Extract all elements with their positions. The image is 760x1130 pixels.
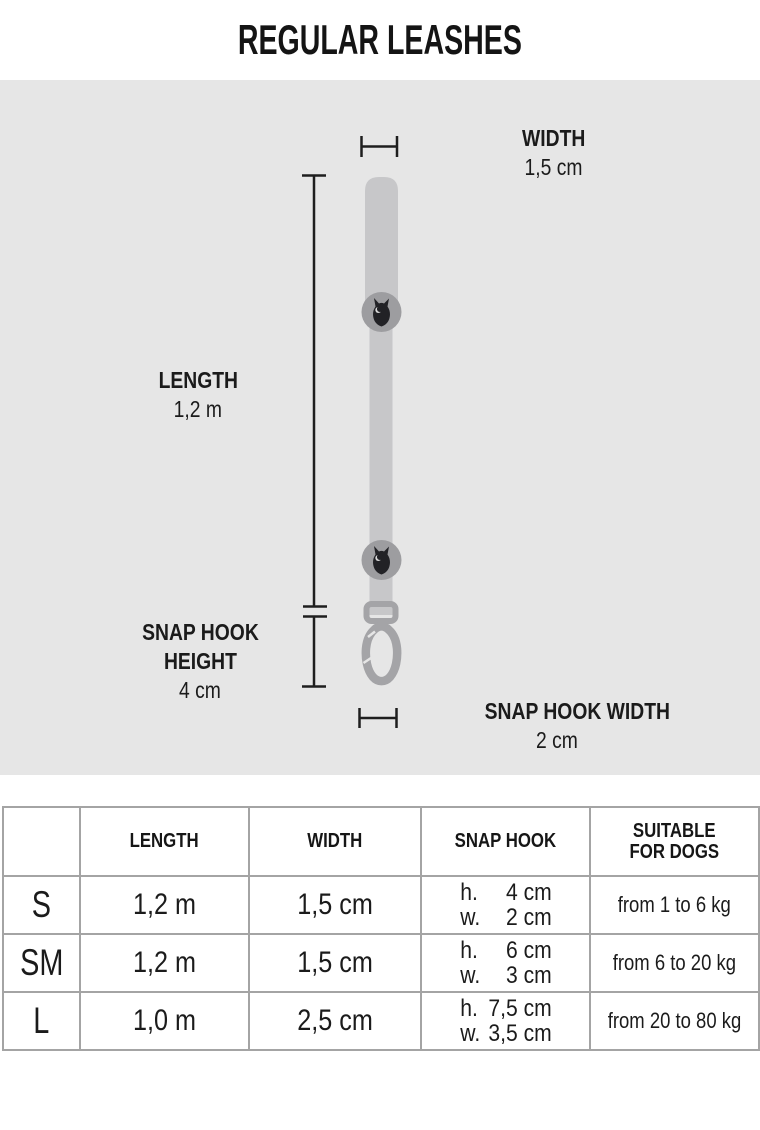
snap-hook-height-label: SNAP HOOK HEIGHT 4 cm xyxy=(125,618,275,705)
size-table: LENGTH WIDTH SNAP HOOK SUITABLE FOR DOGS… xyxy=(2,806,760,1051)
table-row: S 1,2 m 1,5 cm h.4 cm w.2 cm from 1 to 6… xyxy=(3,876,759,934)
page-title: REGULAR LEASHES xyxy=(0,16,760,64)
length-dimension-label: LENGTH 1,2 m xyxy=(123,366,273,424)
width-value: 2,5 cm xyxy=(249,992,421,1050)
width-dimension-bracket xyxy=(362,136,398,157)
width-value: 1,5 cm xyxy=(249,934,421,992)
length-dimension-line xyxy=(302,176,327,607)
leash-illustration xyxy=(0,80,760,775)
owl-medallion-icon xyxy=(362,540,402,580)
size-value: L xyxy=(3,992,80,1050)
suitable-dogs-value: from 6 to 20 kg xyxy=(590,934,759,992)
snap-hook-value: h.6 cm w.3 cm xyxy=(421,934,590,992)
length-value: 1,2 m xyxy=(80,876,249,934)
snap-hook-width-label: SNAP HOOK WIDTH 2 cm xyxy=(467,697,647,755)
width-dimension-label: WIDTH 1,5 cm xyxy=(479,124,629,182)
snap-hook-width-dimension-bracket xyxy=(360,708,397,728)
size-value: S xyxy=(3,876,80,934)
snap-hook-value: h.7,5 cm w.3,5 cm xyxy=(421,992,590,1050)
header-suitable-for-dogs: SUITABLE FOR DOGS xyxy=(590,807,759,876)
table-row: SM 1,2 m 1,5 cm h.6 cm w.3 cm from 6 to … xyxy=(3,934,759,992)
leash-size-diagram: WIDTH 1,5 cm LENGTH 1,2 m SNAP HOOK HEIG… xyxy=(0,80,760,775)
table-header-row: LENGTH WIDTH SNAP HOOK SUITABLE FOR DOGS xyxy=(3,807,759,876)
snap-hook xyxy=(364,604,398,681)
header-width: WIDTH xyxy=(249,807,421,876)
length-value: 1,2 m xyxy=(80,934,249,992)
header-length: LENGTH xyxy=(80,807,249,876)
size-value: SM xyxy=(3,934,80,992)
owl-medallion-icon xyxy=(362,292,402,332)
snap-hook-height-dimension-line xyxy=(302,617,327,687)
size-guide-page: REGULAR LEASHES xyxy=(0,0,760,1130)
leash-handle xyxy=(365,177,398,306)
table-row: L 1,0 m 2,5 cm h.7,5 cm w.3,5 cm from 20… xyxy=(3,992,759,1050)
width-value: 1,5 cm xyxy=(249,876,421,934)
snap-hook-value: h.4 cm w.2 cm xyxy=(421,876,590,934)
header-snap-hook: SNAP HOOK xyxy=(421,807,590,876)
suitable-dogs-value: from 20 to 80 kg xyxy=(590,992,759,1050)
header-size xyxy=(3,807,80,876)
suitable-dogs-value: from 1 to 6 kg xyxy=(590,876,759,934)
length-value: 1,0 m xyxy=(80,992,249,1050)
